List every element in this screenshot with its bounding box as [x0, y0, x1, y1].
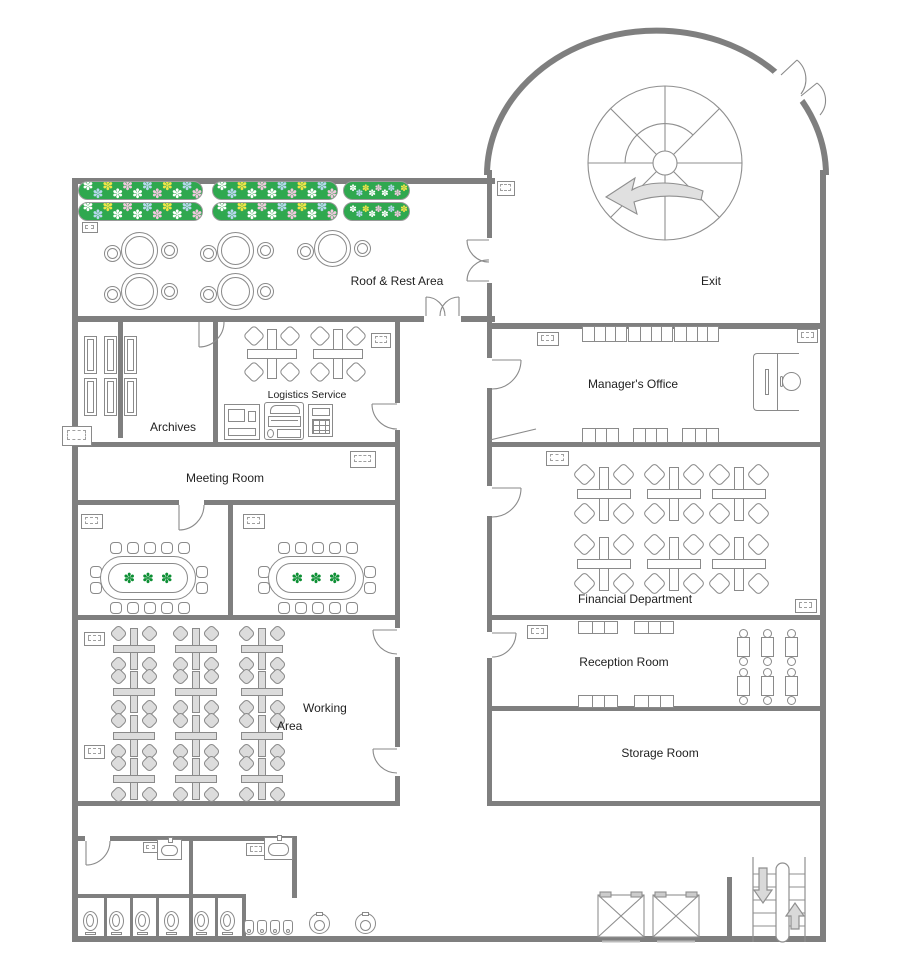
bench-seat [633, 428, 668, 443]
table-icon [761, 637, 774, 657]
archive-shelf [124, 336, 137, 374]
desk-cluster [711, 536, 767, 592]
flower-icon: ✽ [325, 188, 338, 200]
urinal-icon [257, 920, 267, 935]
chair-icon [763, 657, 772, 666]
chair-ring [260, 286, 271, 297]
chair-icon [642, 532, 666, 556]
table-icon [217, 273, 254, 310]
room-label-working-area: Working Area [277, 699, 367, 735]
reception-seat [737, 629, 750, 666]
round-toilet-icon [309, 913, 332, 936]
table-icon [785, 676, 798, 696]
desk-icon [647, 489, 701, 499]
door-arc [372, 404, 397, 429]
vent-grille [799, 602, 813, 608]
plant-icon: ✽ [291, 571, 303, 585]
wall-segment [487, 170, 492, 238]
chair-icon [279, 325, 302, 348]
vent-icon [797, 329, 818, 343]
chair-icon [611, 532, 635, 556]
vent-grille [247, 517, 261, 524]
plant-icon: ✽ [310, 571, 322, 585]
seat-divider [604, 696, 605, 707]
desk-cluster [240, 627, 284, 671]
desk-icon [113, 732, 155, 740]
desk-icon [113, 775, 155, 783]
vent-grille [85, 517, 99, 524]
chair-ring [107, 289, 118, 300]
desk-cluster [246, 328, 298, 380]
seat [197, 914, 205, 927]
desk-cluster [711, 466, 767, 522]
bench-seat [634, 621, 674, 634]
desk-cluster [240, 757, 284, 801]
archive-shelf [84, 378, 97, 416]
desk-icon [313, 349, 363, 358]
wall-segment [395, 776, 400, 801]
chair-icon [196, 566, 208, 578]
base [85, 932, 96, 935]
table-ring [318, 234, 347, 263]
desk-edge [777, 354, 778, 410]
dome-door-gap [777, 70, 803, 100]
chair-ring [260, 245, 271, 256]
wall-segment [395, 657, 400, 747]
desk-cluster [174, 670, 218, 714]
seat-divider [686, 327, 687, 341]
chair-icon [109, 754, 127, 772]
chair-icon [200, 245, 217, 262]
room-label-exit: Exit [681, 274, 741, 288]
working-area-label-line2: Area [277, 717, 367, 735]
seat-divider [615, 327, 616, 341]
keyboard [228, 428, 256, 436]
vent-grille [354, 455, 370, 463]
chair-icon [202, 667, 220, 685]
chair-icon [161, 602, 173, 614]
reception-seat [761, 629, 774, 666]
vent-grille [541, 335, 555, 341]
vent-grille [375, 336, 387, 343]
desk-icon [712, 559, 766, 569]
base [137, 932, 148, 935]
base [196, 932, 207, 935]
chair-icon [572, 462, 596, 486]
desk-icon [113, 688, 155, 696]
chair-icon [329, 602, 341, 614]
chair-icon [109, 785, 127, 803]
chair-icon [572, 501, 596, 525]
rest-table [104, 231, 178, 273]
room-label-archives: Archives [118, 420, 228, 434]
door-arc [179, 505, 204, 530]
desk-cluster [112, 627, 156, 671]
shelf-inner [107, 381, 114, 413]
seat-divider [645, 429, 646, 442]
archive-shelf [104, 336, 117, 374]
table-icon [121, 232, 158, 269]
flower-bed: ✽✽✽✽✽✽✽✽✽✽✽✽ [78, 202, 203, 221]
drain [260, 929, 264, 933]
door-arc [467, 260, 489, 281]
chair-icon [202, 785, 220, 803]
chair-icon [237, 667, 255, 685]
reception-seat [785, 668, 798, 705]
vent-icon [537, 332, 559, 346]
bench-seat [628, 326, 673, 342]
table-icon [314, 230, 351, 267]
shelf-inner [107, 339, 114, 371]
chair-icon [297, 243, 314, 260]
bowl [314, 920, 325, 931]
computer-icon [224, 404, 260, 440]
wall-segment [78, 836, 85, 841]
dome-wall [487, 31, 826, 175]
chair-icon [237, 711, 255, 729]
chair-ring [300, 246, 311, 257]
archive-shelf [84, 336, 97, 374]
desk-cluster [576, 466, 632, 522]
rest-table [200, 231, 274, 273]
seat-divider [656, 429, 657, 442]
chair-icon [171, 667, 189, 685]
staircase-icon [753, 857, 805, 942]
desk-icon [241, 775, 283, 783]
chair-ring [164, 286, 175, 297]
chair-ring [164, 245, 175, 256]
vent-grille [88, 748, 101, 754]
basin [268, 843, 289, 856]
chair-icon [110, 542, 122, 554]
wall-segment [487, 283, 492, 323]
wall-segment [487, 615, 826, 620]
rest-table [104, 272, 178, 314]
seat-divider [640, 327, 641, 341]
seat [223, 914, 231, 927]
desk-cluster [112, 670, 156, 714]
toilet-icon [134, 911, 152, 937]
seat-divider [592, 696, 593, 707]
wall-segment [487, 801, 826, 806]
chair-icon [237, 785, 255, 803]
door-arc [199, 322, 224, 347]
screen [228, 409, 245, 422]
chair-icon [171, 711, 189, 729]
base [222, 932, 233, 935]
chair-icon [278, 542, 290, 554]
bench-seat [582, 326, 627, 342]
chair-icon [140, 711, 158, 729]
chair-icon [312, 542, 324, 554]
toilet-icon [219, 911, 237, 937]
vent-icon [527, 625, 548, 639]
table-icon: ✽✽✽ [268, 556, 364, 600]
chair-icon [127, 602, 139, 614]
wall-segment [487, 658, 492, 801]
door-arc [492, 488, 521, 517]
door-arc [373, 630, 397, 654]
vent-icon [497, 181, 515, 196]
wall-segment [395, 316, 400, 403]
base [111, 932, 122, 935]
bench-seat [682, 428, 719, 443]
chair-icon [787, 696, 796, 705]
chair-icon [171, 785, 189, 803]
chair-icon [200, 286, 217, 303]
direction-arrow-icon [606, 178, 703, 214]
desk-cluster [576, 536, 632, 592]
desk-icon [577, 559, 631, 569]
chair-icon [707, 462, 731, 486]
door-arc [373, 749, 397, 773]
chair-icon [572, 532, 596, 556]
table-icon [121, 273, 158, 310]
tower [248, 411, 256, 422]
seat-divider [660, 622, 661, 633]
shelf-inner [127, 381, 134, 413]
seat-divider [660, 696, 661, 707]
door-arc [492, 360, 521, 389]
vent-icon [84, 745, 105, 759]
table-icon [737, 676, 750, 696]
vent-icon [795, 599, 817, 613]
chair-icon [681, 501, 705, 525]
door-arc [426, 297, 445, 316]
chair-icon [243, 361, 266, 384]
wall-segment [72, 500, 179, 505]
flower-bed: ✽✽✽✽✽✽✽✽✽ [343, 181, 410, 200]
chair-ring [107, 248, 118, 259]
wall-segment [204, 500, 400, 505]
table-icon [737, 637, 750, 657]
seat-divider [648, 696, 649, 707]
seat-divider [648, 622, 649, 633]
wall-segment [156, 894, 159, 940]
flower-icon: ✽ [325, 209, 338, 221]
door-arc [467, 240, 489, 262]
room-label-logistics-service: Logistics Service [257, 389, 357, 401]
display [312, 408, 330, 416]
desk-cluster [174, 757, 218, 801]
chair-icon [196, 582, 208, 594]
chair-icon [243, 325, 266, 348]
flower-bed: ✽✽✽✽✽✽✽✽✽✽✽✽ [78, 181, 203, 200]
seat-divider [661, 327, 662, 341]
urinal-icon [244, 920, 254, 935]
flower-icon: ✽ [397, 203, 410, 215]
wall-segment [487, 329, 492, 358]
chair-icon [364, 566, 376, 578]
desk-cluster [646, 536, 702, 592]
desk-icon [241, 688, 283, 696]
vent-icon [82, 222, 98, 233]
drain [273, 929, 277, 933]
chair-icon [707, 532, 731, 556]
wall-segment [130, 894, 133, 940]
desk-icon [113, 645, 155, 653]
spiral-staircase-icon [588, 86, 742, 240]
chair-icon [346, 602, 358, 614]
desk-icon [175, 732, 217, 740]
wall-segment [104, 894, 107, 940]
reception-seat [761, 668, 774, 705]
chair-icon [763, 696, 772, 705]
chair-icon [202, 624, 220, 642]
wall-segment [72, 801, 400, 806]
urinal-icon [283, 920, 293, 935]
chair-icon [140, 785, 158, 803]
seat-divider [595, 429, 596, 442]
chair-icon [140, 667, 158, 685]
chair-ring [203, 248, 214, 259]
vent-grille [88, 635, 101, 641]
vent-icon [371, 333, 391, 348]
desk-icon [247, 349, 297, 358]
shelf-inner [87, 339, 94, 371]
archive-shelf [124, 378, 137, 416]
desk-icon [175, 775, 217, 783]
bench-seat [634, 695, 674, 708]
fax-machine-icon [264, 402, 304, 440]
chair-icon [109, 711, 127, 729]
chair-icon [312, 602, 324, 614]
flower-icon: ✽ [397, 182, 410, 194]
door-leaf [490, 429, 536, 440]
chair-icon [161, 283, 178, 300]
plant-icon: ✽ [329, 571, 341, 585]
desk-icon [647, 559, 701, 569]
monitor-icon [765, 369, 769, 395]
table-inner: ✽✽✽ [108, 563, 188, 593]
chair-icon [178, 602, 190, 614]
chair-icon [329, 542, 341, 554]
basin [161, 845, 178, 856]
chair-icon [237, 754, 255, 772]
chair-icon [268, 754, 286, 772]
room-label-storage-room: Storage Room [605, 746, 715, 760]
toilet-icon [193, 911, 211, 937]
bench-seat [674, 326, 719, 342]
desk-icon [175, 645, 217, 653]
tray [277, 429, 301, 438]
wall-segment [487, 388, 492, 486]
sink-icon [157, 839, 182, 860]
shelf-inner [87, 381, 94, 413]
working-area-label-line1: Working [277, 699, 367, 717]
vent-grille [85, 225, 95, 230]
chair-icon [295, 602, 307, 614]
table-icon [785, 637, 798, 657]
chair-icon [642, 462, 666, 486]
wall-segment [487, 516, 492, 632]
desk-cluster [312, 328, 364, 380]
vent-grille [67, 430, 86, 439]
seat [167, 914, 175, 927]
conference-table: ✽✽✽ [258, 538, 376, 618]
chair-icon [140, 624, 158, 642]
vent-icon [246, 843, 266, 856]
vent-grille [801, 332, 814, 338]
elevator-icon [653, 895, 699, 937]
chair-icon [144, 542, 156, 554]
desk-cluster [174, 714, 218, 758]
panel [268, 416, 301, 427]
seat-divider [604, 622, 605, 633]
wall-segment [395, 430, 400, 628]
vent-icon [81, 514, 103, 529]
desk-cluster [112, 757, 156, 801]
room-label-financial-department: Financial Department [572, 592, 698, 606]
office-floor-plan: Roof & Rest Area Exit Archives Logistics… [0, 0, 900, 972]
door-arc [492, 633, 516, 657]
table-ring [125, 236, 154, 265]
toilet-icon [82, 911, 100, 937]
conference-table: ✽✽✽ [90, 538, 208, 618]
desk-cluster [112, 714, 156, 758]
table-icon [217, 232, 254, 269]
seat-divider [695, 429, 696, 442]
vent-grille [531, 628, 544, 634]
chair-icon [681, 532, 705, 556]
chair-icon [309, 361, 332, 384]
seat-divider [592, 622, 593, 633]
room-label-meeting-room: Meeting Room [170, 471, 280, 485]
table-ring [221, 277, 250, 306]
chair-icon [739, 657, 748, 666]
wall-segment [820, 170, 826, 942]
chair-icon [109, 667, 127, 685]
down-arrow-icon [754, 868, 772, 903]
seat-divider [707, 327, 708, 341]
up-arrow-icon [786, 903, 804, 929]
flower-icon: ✽ [190, 209, 203, 221]
door-arc [86, 841, 110, 865]
chair-icon [739, 696, 748, 705]
wall-segment [72, 178, 78, 942]
seat [86, 914, 94, 927]
manager-desk [753, 353, 799, 411]
chair-icon [346, 542, 358, 554]
tank [362, 912, 369, 916]
chair-icon [202, 711, 220, 729]
drain [247, 929, 251, 933]
plant-icon: ✽ [123, 571, 135, 585]
chair-icon [104, 286, 121, 303]
vent-icon [62, 426, 92, 446]
room-label-reception-room: Reception Room [569, 655, 679, 669]
chair-icon [109, 624, 127, 642]
desk-icon [577, 489, 631, 499]
table-icon: ✽✽✽ [100, 556, 196, 600]
sink-icon [264, 837, 293, 860]
wall-segment [72, 442, 400, 447]
flower-bed: ✽✽✽✽✽✽✽✽✽✽✽✽ [212, 202, 338, 221]
desk-icon [175, 688, 217, 696]
chair-icon [237, 624, 255, 642]
chair-icon [268, 624, 286, 642]
seat [112, 914, 120, 927]
flower-bed: ✽✽✽✽✽✽✽✽✽ [343, 202, 410, 221]
chair-icon [161, 542, 173, 554]
chair-icon [642, 501, 666, 525]
chair-icon [295, 542, 307, 554]
wall-segment [727, 877, 732, 941]
chair-icon [345, 325, 368, 348]
keypad [312, 419, 330, 434]
chair-ring [357, 243, 368, 254]
handset [267, 429, 274, 438]
